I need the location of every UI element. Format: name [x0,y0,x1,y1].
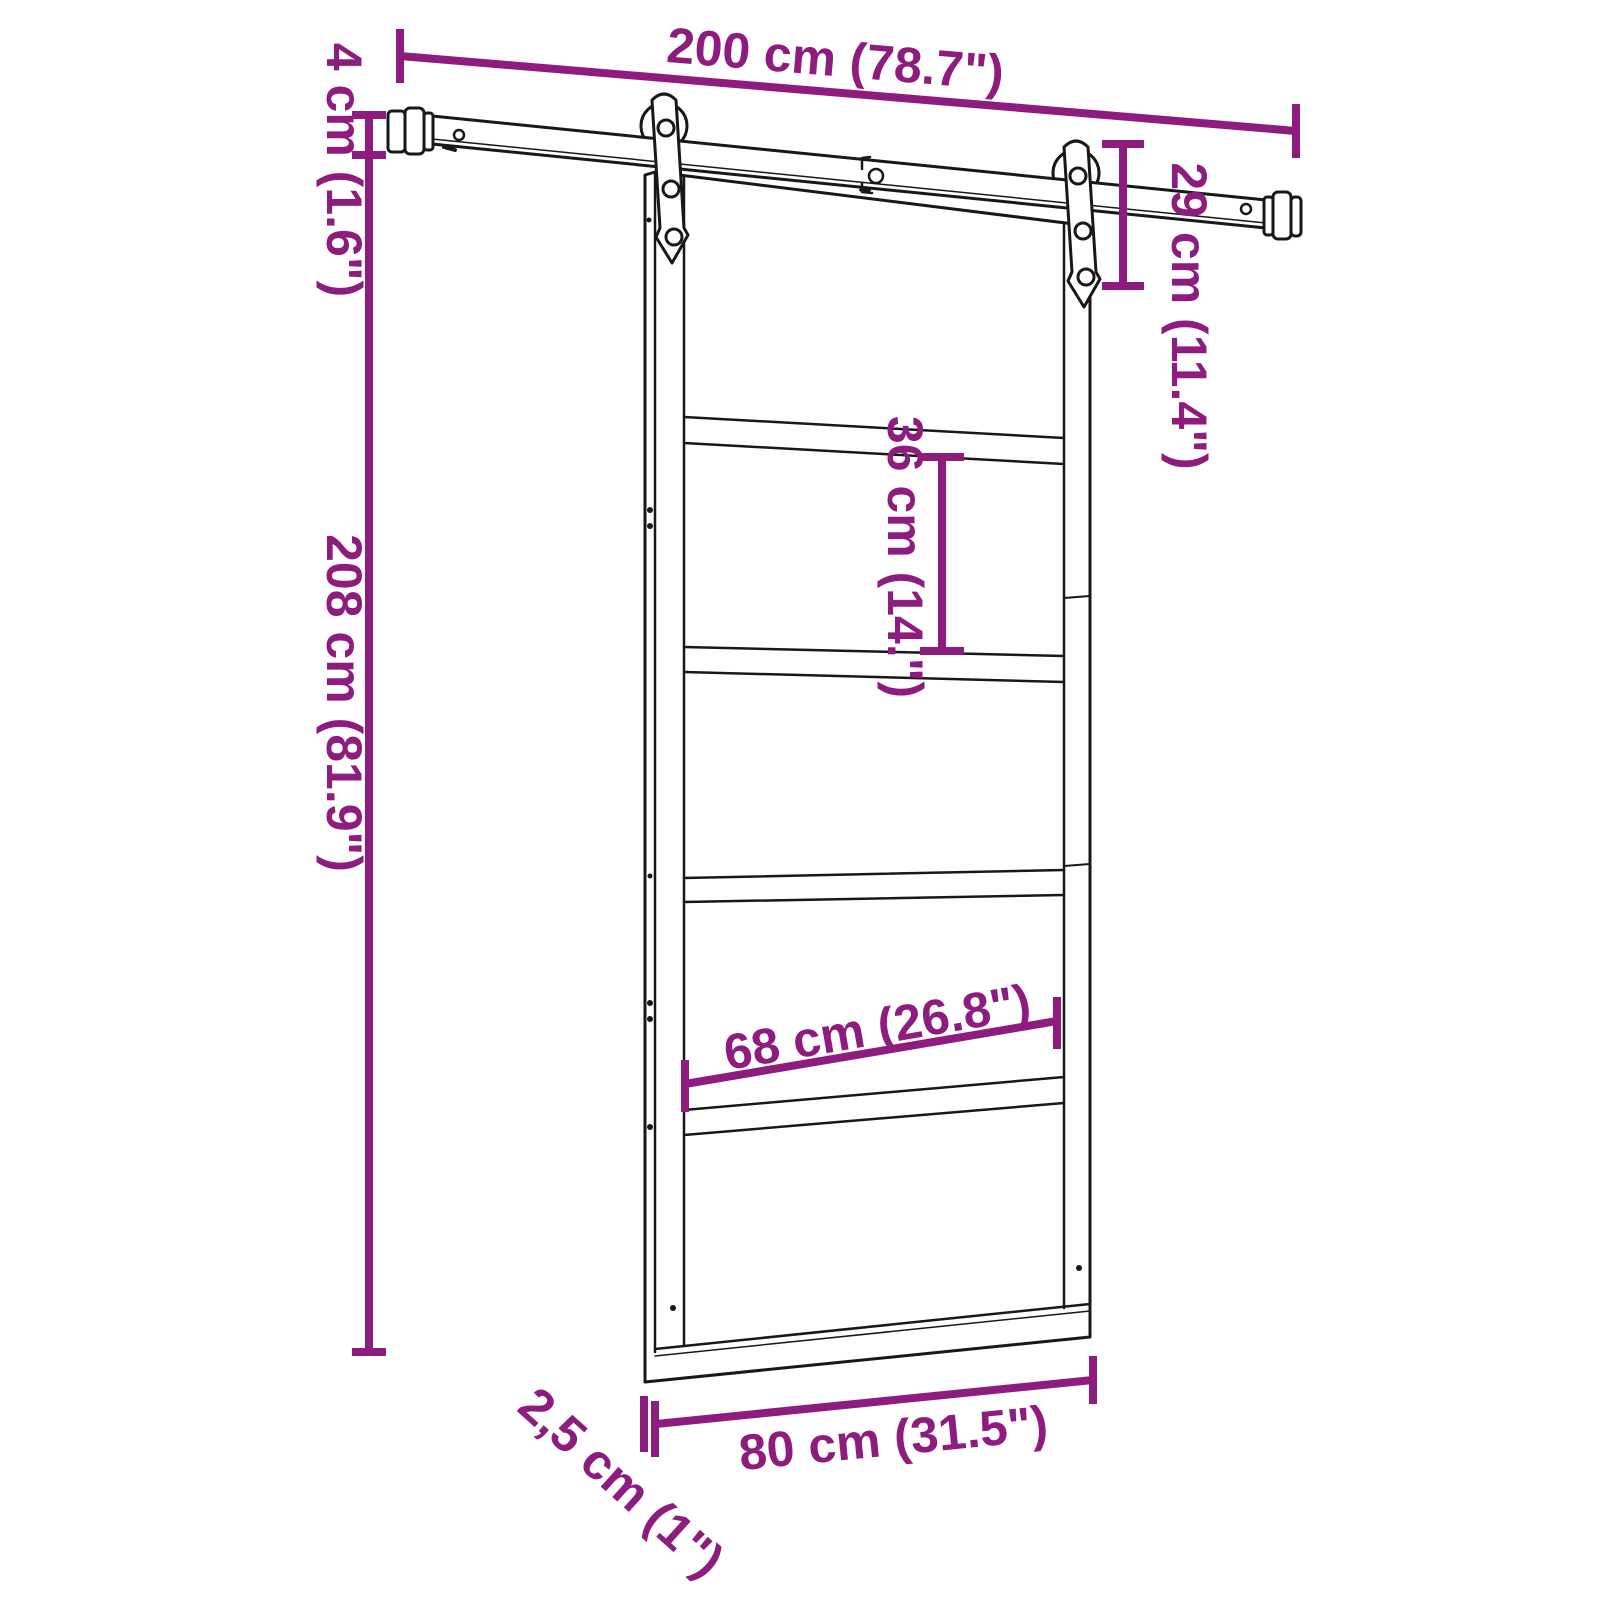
barn-door [645,172,1090,1382]
left-strap-bolt [663,181,679,197]
dim-rail-height-label: 4 cm (1.6") [316,43,372,297]
door-slab [645,172,1090,1382]
rail-left-end-stop [388,108,433,154]
right-strap-tip-bolt [1078,269,1094,285]
diagram-canvas: 200 cm (78.7") 4 cm (1.6") 208 cm (81.9"… [0,0,1600,1600]
dim-door-height: 208 cm (81.9") [316,155,386,1352]
rail-right-end-stop [1264,192,1301,239]
right-strap-axle-bolt [1070,168,1086,184]
dim-panel-height-label: 36 cm (14.") [877,416,933,698]
rail-screw-left [454,130,464,140]
dim-rail-height: 4 cm (1.6") [316,43,386,297]
dim-door-height-label: 208 cm (81.9") [316,534,372,872]
dim-door-thickness-label: 2,5 cm (1") [508,1376,735,1588]
dim-door-thickness: 2,5 cm (1") [508,1376,735,1588]
rail-screw-right [1241,204,1251,214]
left-strap-tip-bolt [666,229,682,245]
left-strap-axle-bolt [658,120,674,136]
dimension-diagram: 200 cm (78.7") 4 cm (1.6") 208 cm (81.9"… [0,0,1600,1600]
dim-hanger-height-label: 29 cm (11.4") [1161,162,1217,469]
right-strap-bolt [1075,223,1091,239]
